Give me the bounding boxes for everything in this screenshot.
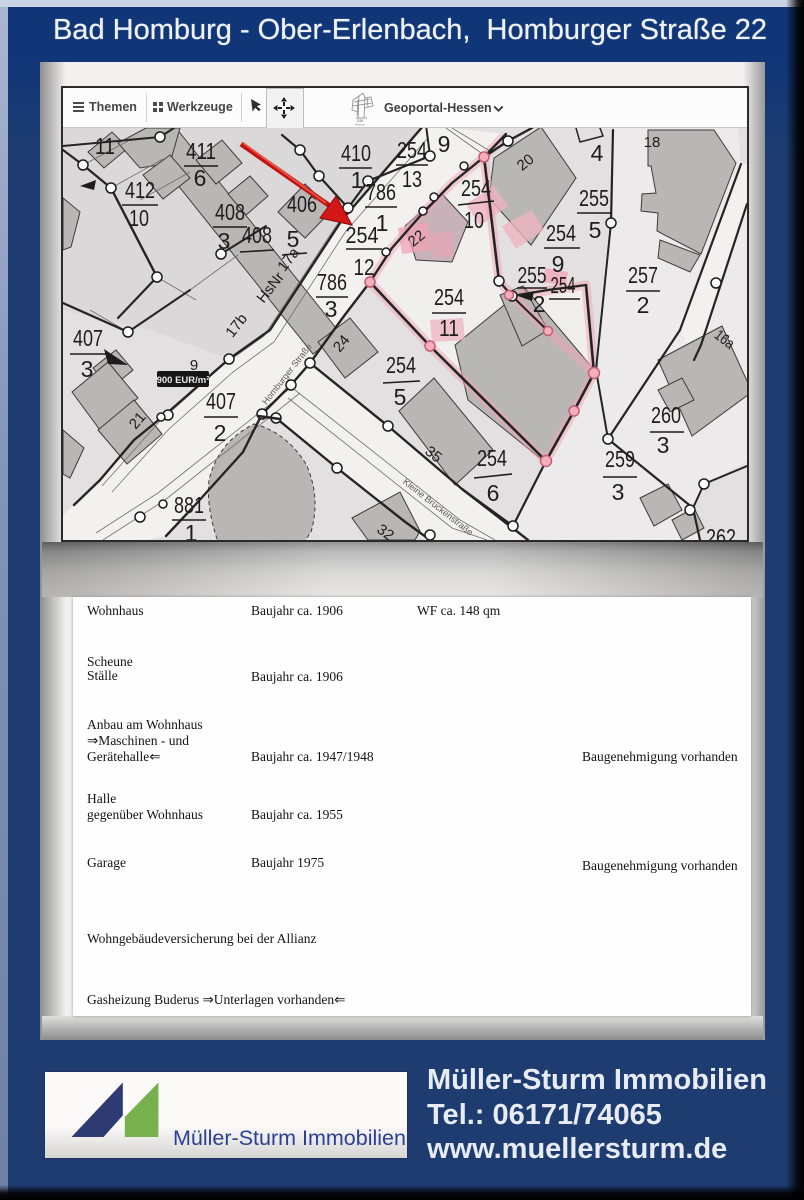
- svg-text:254: 254: [434, 284, 464, 310]
- svg-text:10: 10: [464, 207, 484, 233]
- svg-text:260: 260: [651, 402, 681, 428]
- svg-text:11: 11: [439, 315, 459, 341]
- svg-text:10: 10: [129, 205, 149, 231]
- svg-text:900 EUR/m²: 900 EUR/m²: [157, 375, 210, 386]
- svg-text:18: 18: [644, 134, 661, 151]
- svg-text:786: 786: [366, 179, 396, 205]
- svg-text:257: 257: [628, 262, 658, 288]
- svg-text:1: 1: [376, 210, 389, 236]
- svg-text:3: 3: [81, 356, 94, 382]
- svg-text:2: 2: [637, 292, 650, 318]
- svg-text:1: 1: [185, 520, 198, 540]
- svg-text:1: 1: [351, 167, 364, 193]
- svg-text:6: 6: [194, 165, 207, 191]
- svg-text:254: 254: [397, 137, 427, 163]
- svg-text:254: 254: [477, 445, 507, 471]
- svg-text:407: 407: [206, 388, 236, 414]
- svg-text:3: 3: [325, 296, 338, 322]
- svg-text:408: 408: [215, 199, 245, 225]
- svg-text:4: 4: [591, 140, 604, 166]
- svg-text:3: 3: [218, 228, 231, 254]
- svg-text:6: 6: [487, 480, 500, 506]
- svg-text:255: 255: [518, 262, 547, 288]
- svg-text:412: 412: [125, 177, 155, 203]
- svg-text:254: 254: [386, 352, 416, 378]
- svg-text:254: 254: [546, 220, 576, 246]
- svg-text:411: 411: [186, 138, 216, 164]
- svg-text:410: 410: [341, 140, 371, 166]
- svg-text:12: 12: [354, 254, 375, 280]
- svg-text:408: 408: [242, 222, 272, 248]
- svg-text:2: 2: [533, 291, 546, 317]
- svg-text:786: 786: [317, 269, 347, 295]
- svg-text:254: 254: [346, 222, 379, 248]
- svg-text:881: 881: [174, 492, 204, 518]
- svg-text:11: 11: [95, 133, 115, 159]
- svg-text:Hessen: Hessen: [355, 122, 366, 126]
- svg-text:254: 254: [551, 272, 576, 298]
- svg-text:262: 262: [706, 524, 736, 540]
- svg-text:259: 259: [605, 446, 635, 472]
- svg-text:2: 2: [214, 420, 227, 446]
- svg-text:3: 3: [612, 479, 625, 505]
- svg-text:13: 13: [402, 166, 422, 192]
- svg-text:5: 5: [589, 217, 602, 243]
- svg-text:255: 255: [579, 185, 609, 211]
- svg-text:254: 254: [461, 175, 491, 201]
- svg-text:3: 3: [657, 432, 670, 458]
- svg-text:5: 5: [394, 384, 407, 410]
- svg-text:9: 9: [438, 131, 451, 157]
- svg-text:407: 407: [73, 325, 103, 351]
